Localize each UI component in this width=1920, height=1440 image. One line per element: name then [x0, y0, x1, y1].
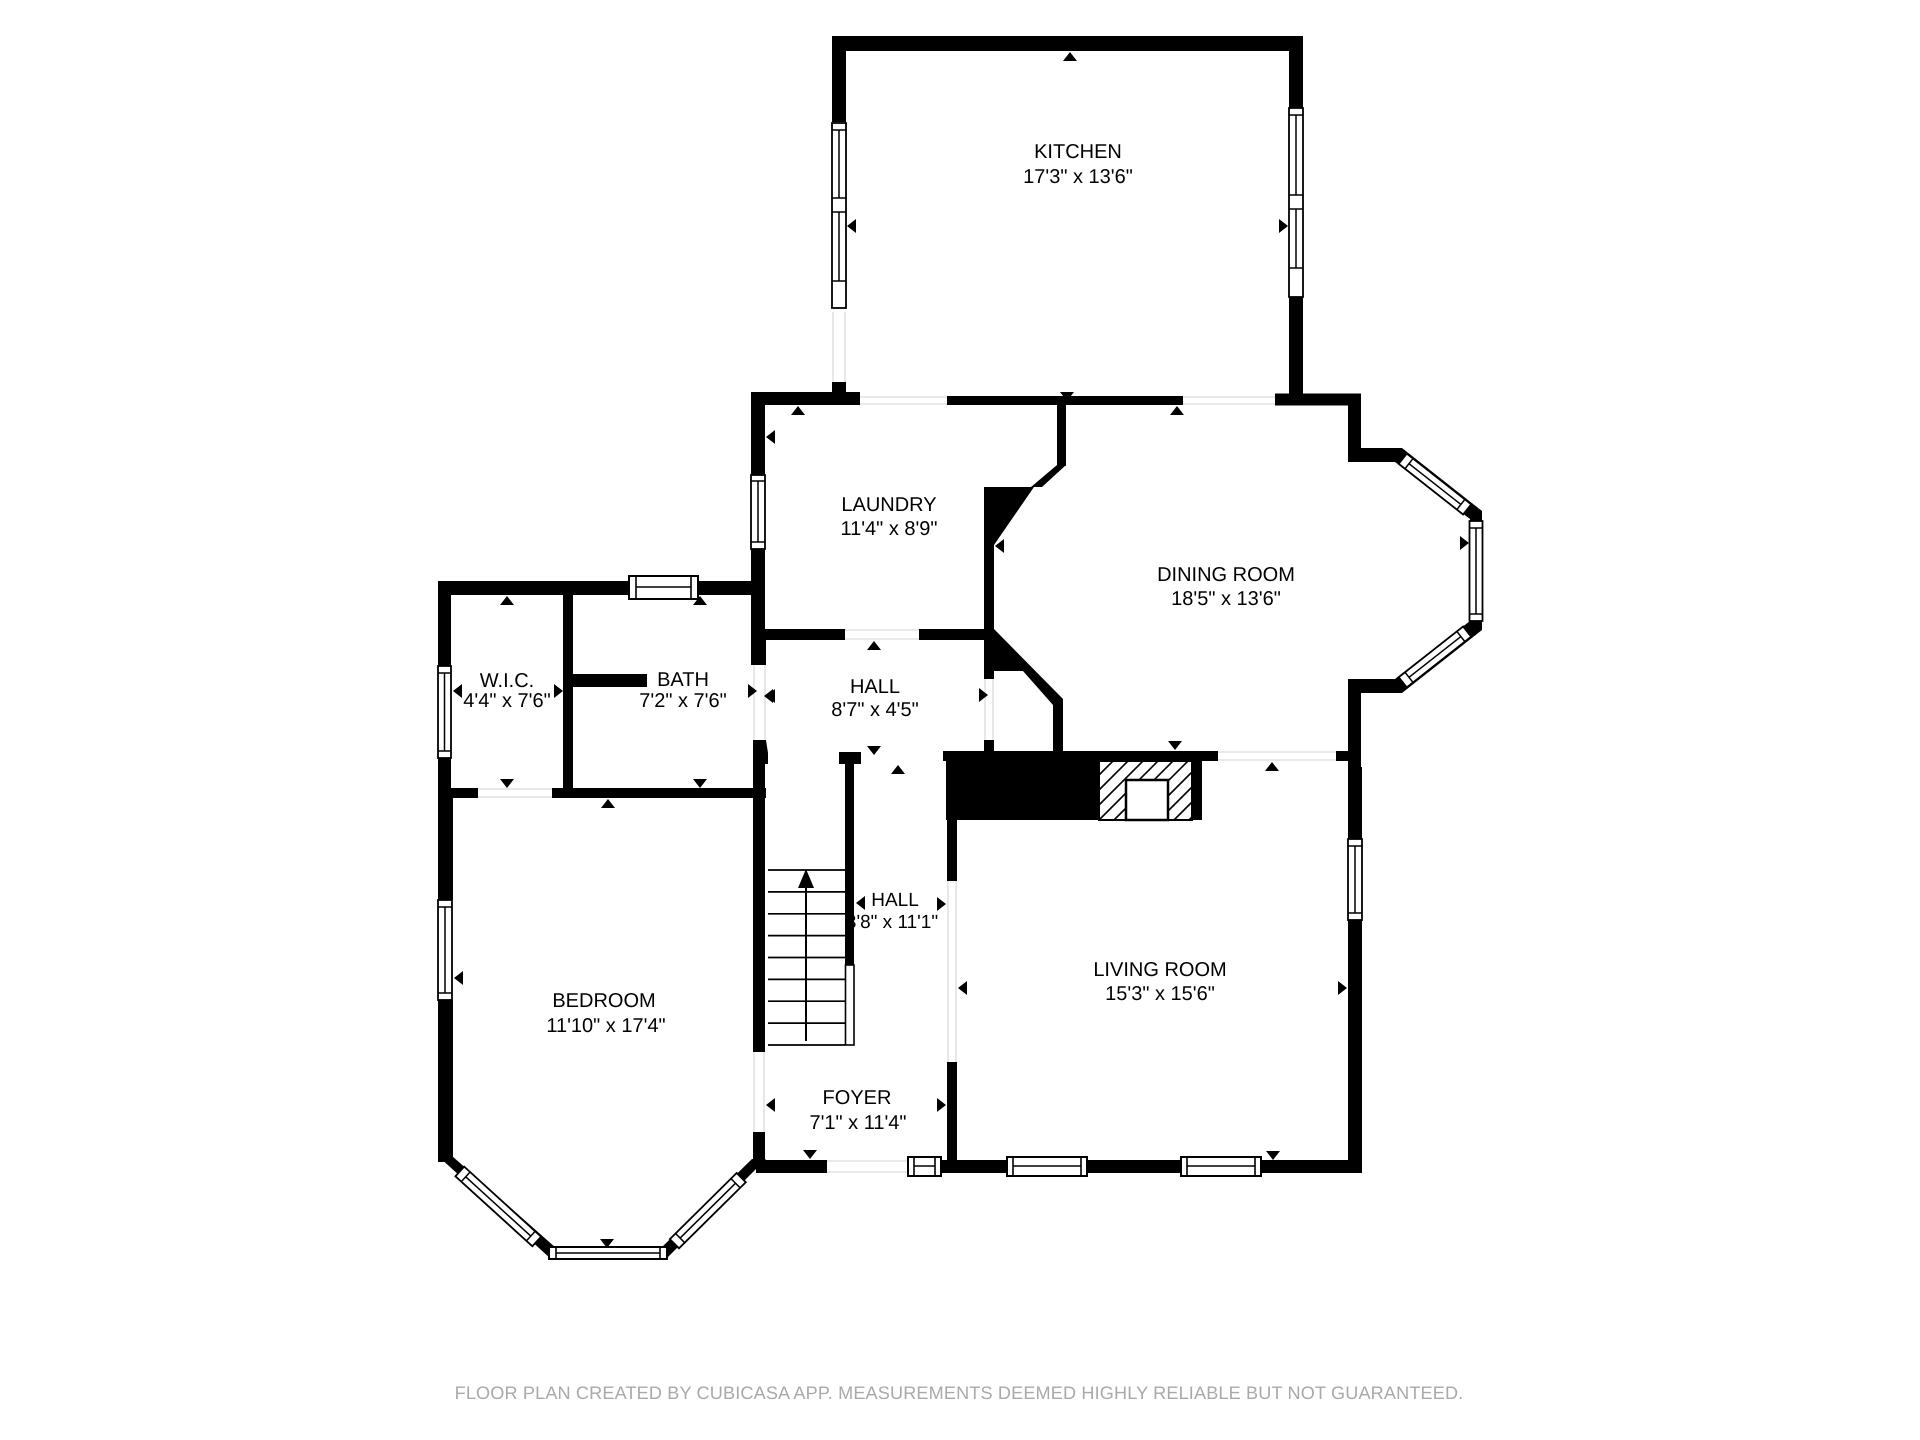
svg-text:7'1" x 11'4": 7'1" x 11'4": [809, 1112, 906, 1134]
svg-text:11'4" x 8'9": 11'4" x 8'9": [840, 518, 937, 540]
svg-text:BATH: BATH: [657, 669, 709, 691]
svg-text:HALL: HALL: [850, 676, 900, 698]
svg-text:KITCHEN: KITCHEN: [1034, 141, 1122, 163]
svg-text:HALL: HALL: [871, 890, 919, 911]
svg-text:LAUNDRY: LAUNDRY: [841, 494, 936, 516]
svg-text:18'5" x 13'6": 18'5" x 13'6": [1171, 588, 1281, 610]
svg-text:17'3" x 13'6": 17'3" x 13'6": [1023, 166, 1133, 188]
svg-text:3'8" x 11'1": 3'8" x 11'1": [846, 912, 938, 933]
svg-text:4'4" x 7'6": 4'4" x 7'6": [463, 690, 550, 712]
svg-text:7'2" x 7'6": 7'2" x 7'6": [639, 690, 726, 712]
svg-text:15'3" x 15'6": 15'3" x 15'6": [1105, 983, 1215, 1005]
svg-text:LIVING ROOM: LIVING ROOM: [1093, 959, 1226, 981]
svg-text:FLOOR PLAN CREATED BY CUBICASA: FLOOR PLAN CREATED BY CUBICASA APP. MEAS…: [455, 1383, 1464, 1403]
svg-text:11'10" x 17'4": 11'10" x 17'4": [546, 1015, 665, 1037]
svg-text:BEDROOM: BEDROOM: [552, 990, 655, 1012]
svg-text:W.I.C.: W.I.C.: [480, 670, 534, 692]
svg-text:DINING ROOM: DINING ROOM: [1157, 564, 1295, 586]
svg-text:8'7" x 4'5": 8'7" x 4'5": [831, 699, 918, 721]
svg-text:FOYER: FOYER: [823, 1087, 892, 1109]
